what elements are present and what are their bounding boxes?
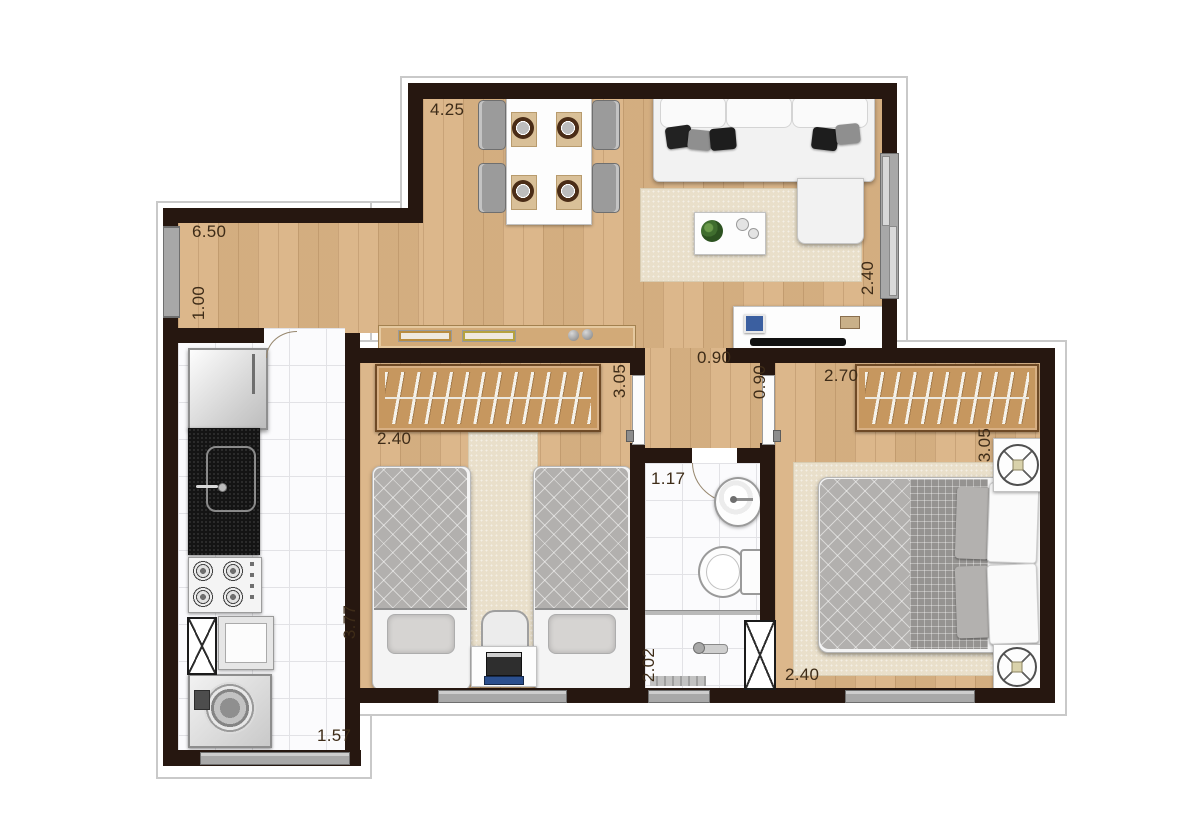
wall-segment	[726, 348, 1055, 363]
wardrobe-bedroom-2	[375, 364, 601, 432]
kitchen-sink	[206, 446, 256, 512]
bathroom-window	[648, 690, 710, 703]
dimension-label: 6.50	[192, 222, 226, 242]
dimension-label: 3.77	[340, 605, 360, 639]
refrigerator	[188, 348, 268, 430]
wardrobe-master	[855, 364, 1039, 432]
service-shaft	[744, 620, 776, 690]
plate-icon	[557, 117, 579, 139]
remote-icon	[840, 316, 860, 329]
burner-icon	[222, 586, 244, 608]
single-bed-blanket	[374, 468, 467, 610]
shower-partition	[645, 610, 760, 615]
dimension-label: 1.17	[651, 469, 685, 489]
wall-segment	[345, 348, 640, 363]
wall-segment	[408, 83, 897, 99]
pillow	[387, 614, 455, 654]
door-handle-icon	[773, 430, 781, 442]
dimension-label: 3.05	[975, 428, 995, 462]
sideboard-tray	[398, 330, 452, 342]
photo-frame-icon	[744, 314, 765, 333]
shower-control-icon	[693, 642, 705, 654]
dining-chair	[478, 100, 506, 150]
kitchen-window	[200, 752, 350, 765]
wall-segment	[882, 83, 897, 155]
entry-door	[163, 226, 180, 318]
sofa-chaise	[797, 178, 864, 244]
laundry-tub	[218, 616, 274, 670]
decor-sphere-icon	[582, 329, 593, 340]
door-handle-icon	[626, 430, 634, 442]
dimension-label: 2.70	[824, 366, 858, 386]
washer-door-icon	[204, 682, 256, 734]
service-shaft	[187, 617, 217, 675]
window-panel	[889, 226, 897, 296]
burner-icon	[222, 560, 244, 582]
floor-plan: 4.25 6.50 1.00 2.40 0.90 0.90 2.70 3.05 …	[0, 0, 1200, 840]
wall-segment	[163, 208, 423, 223]
master-window	[845, 690, 975, 703]
dimension-label: 2.02	[639, 648, 659, 682]
plate-icon	[512, 117, 534, 139]
single-bed-blanket	[535, 468, 628, 610]
pillow	[987, 482, 1040, 564]
dimension-label: 2.40	[858, 261, 878, 295]
window-panel	[882, 156, 890, 226]
sofa-pillow	[835, 123, 861, 145]
wall-segment	[630, 348, 645, 375]
pillow	[548, 614, 616, 654]
hanger-icons	[385, 372, 591, 424]
dimension-label: 3.05	[610, 364, 630, 398]
burner-icon	[192, 586, 214, 608]
double-bed-blanket	[820, 479, 910, 649]
pillow	[955, 486, 991, 559]
dining-chair	[592, 100, 620, 150]
bedroom-2-window	[438, 690, 567, 703]
wall-segment	[408, 83, 423, 223]
decor-fan-icon	[997, 444, 1039, 486]
cup-icon	[748, 228, 759, 239]
sideboard-tray	[462, 330, 516, 342]
burner-icon	[192, 560, 214, 582]
dining-chair	[592, 163, 620, 213]
dimension-label: 0.90	[697, 348, 731, 368]
refrigerator-handle	[252, 354, 255, 394]
dimension-label: 1.57	[317, 726, 351, 746]
tv	[750, 338, 846, 346]
wall-segment	[882, 295, 897, 355]
faucet-icon	[218, 483, 227, 492]
dimension-label: 2.40	[377, 429, 411, 449]
washbasin	[714, 477, 762, 527]
dimension-label: 2.40	[785, 665, 819, 685]
washer-panel	[194, 690, 210, 710]
wall-segment	[737, 448, 760, 463]
cup-icon	[736, 218, 749, 231]
basin-faucet-icon	[730, 496, 737, 503]
faucet-icon	[196, 485, 218, 488]
sofa-pillow	[709, 127, 737, 151]
plate-icon	[512, 180, 534, 202]
pillow	[987, 563, 1040, 645]
wall-segment	[163, 328, 264, 343]
sofa-cushion	[660, 96, 726, 128]
plate-icon	[557, 180, 579, 202]
laptop-icon	[486, 652, 522, 676]
decor-sphere-icon	[568, 330, 579, 341]
decor-fan-icon	[997, 647, 1037, 687]
hanger-icons	[865, 372, 1029, 424]
wall-segment	[1040, 348, 1055, 703]
dimension-label: 0.90	[750, 365, 770, 399]
wall-segment	[645, 448, 692, 463]
pillow	[955, 565, 991, 638]
dining-chair	[478, 163, 506, 213]
dimension-label: 4.25	[430, 100, 464, 120]
stove-knobs	[250, 562, 254, 606]
sofa-cushion	[726, 96, 792, 128]
laptop-base	[484, 676, 524, 685]
dimension-label: 1.00	[189, 286, 209, 320]
plant-icon	[701, 220, 723, 242]
